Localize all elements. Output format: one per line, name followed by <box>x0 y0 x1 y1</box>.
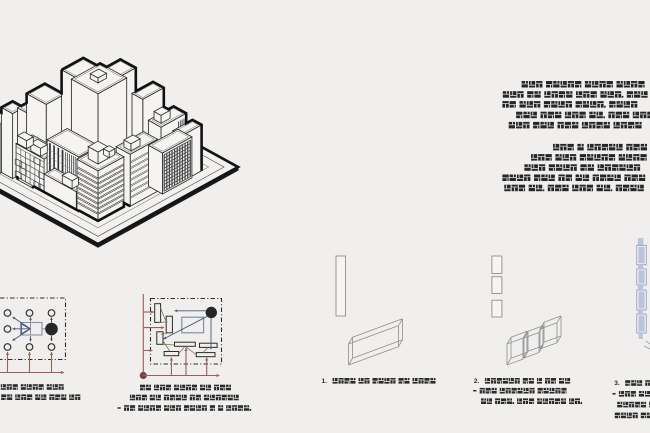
svg-text:2.: 2. <box>474 378 480 385</box>
svg-text:1.: 1. <box>322 378 328 385</box>
svg-text:3.: 3. <box>614 380 620 387</box>
